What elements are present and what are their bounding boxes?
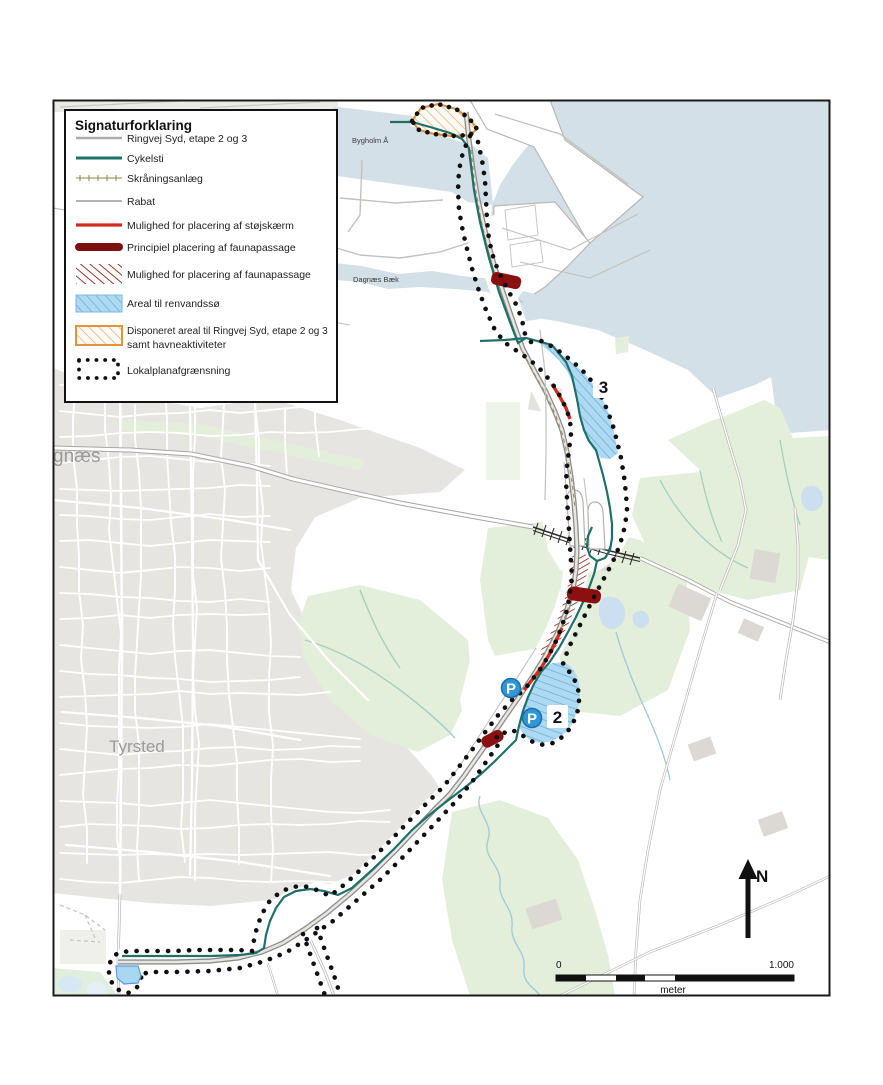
svg-text:1.000: 1.000 — [769, 960, 794, 971]
svg-text:Mulighed for placering af støj: Mulighed for placering af støjskærm — [127, 220, 294, 232]
svg-text:Principiel placering af faunap: Principiel placering af faunapassage — [127, 242, 296, 254]
svg-text:Lokalplanafgrænsning: Lokalplanafgrænsning — [127, 365, 230, 377]
svg-text:Areal til renvandssø: Areal til renvandssø — [127, 298, 220, 310]
svg-text:Bygholm Å: Bygholm Å — [352, 136, 388, 145]
svg-text:Cykelsti: Cykelsti — [127, 153, 164, 165]
svg-text:2: 2 — [553, 708, 562, 727]
svg-text:samt havneaktiviteter: samt havneaktiviteter — [127, 339, 227, 351]
svg-text:Signaturforklaring: Signaturforklaring — [75, 118, 192, 133]
svg-text:gnæs: gnæs — [53, 446, 101, 467]
svg-text:Tyrsted: Tyrsted — [109, 737, 165, 756]
svg-text:P: P — [527, 711, 537, 728]
svg-text:meter: meter — [660, 985, 686, 996]
svg-text:Dagnæs Bæk: Dagnæs Bæk — [353, 275, 399, 284]
svg-text:N: N — [756, 867, 768, 886]
svg-text:Skråningsanlæg: Skråningsanlæg — [127, 173, 203, 185]
svg-text:Mulighed for placering af faun: Mulighed for placering af faunapassage — [127, 269, 311, 281]
svg-text:Ringvej Syd, etape 2 og 3: Ringvej Syd, etape 2 og 3 — [127, 133, 247, 145]
svg-text:0: 0 — [556, 960, 562, 971]
svg-text:3: 3 — [599, 378, 608, 397]
svg-text:P: P — [506, 681, 516, 698]
svg-text:Disponeret areal til Ringvej S: Disponeret areal til Ringvej Syd, etape … — [127, 326, 328, 337]
svg-text:Rabat: Rabat — [127, 196, 155, 208]
